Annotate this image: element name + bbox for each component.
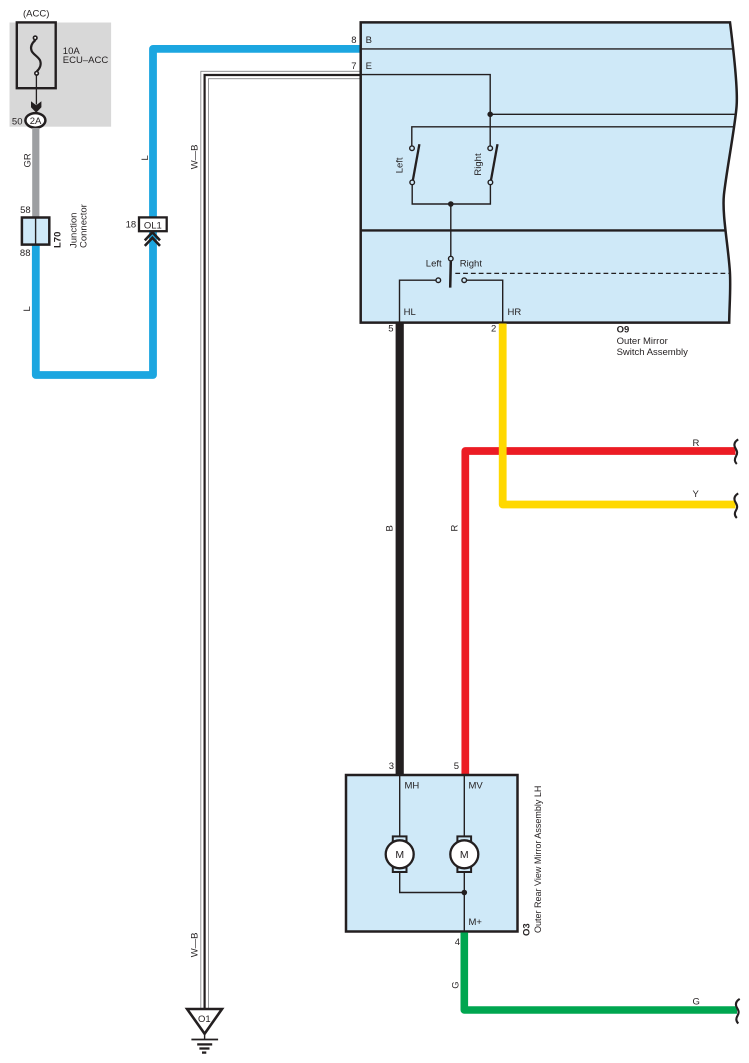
svg-text:MV: MV — [469, 780, 484, 791]
svg-text:M: M — [395, 849, 404, 861]
svg-text:58: 58 — [20, 205, 31, 216]
svg-text:E: E — [366, 61, 372, 72]
svg-text:88: 88 — [20, 248, 31, 259]
svg-text:Y: Y — [693, 489, 700, 500]
svg-text:G: G — [693, 997, 700, 1008]
svg-text:50: 50 — [12, 116, 23, 127]
svg-text:Connector: Connector — [79, 204, 90, 248]
svg-text:HR: HR — [508, 307, 522, 318]
svg-text:L70: L70 — [53, 232, 64, 248]
svg-text:18: 18 — [126, 220, 137, 231]
svg-text:M: M — [460, 849, 469, 861]
svg-text:2: 2 — [491, 323, 496, 334]
svg-text:Left: Left — [426, 258, 442, 269]
svg-text:G: G — [451, 981, 462, 988]
svg-text:R: R — [693, 438, 700, 449]
svg-text:M+: M+ — [469, 917, 483, 928]
svg-text:OL1: OL1 — [144, 220, 162, 231]
svg-text:O9: O9 — [617, 325, 630, 336]
svg-text:8: 8 — [351, 35, 356, 46]
svg-text:HL: HL — [404, 307, 416, 318]
svg-text:Left: Left — [395, 157, 406, 173]
svg-text:B: B — [366, 35, 372, 46]
svg-text:L: L — [22, 306, 33, 311]
svg-text:7: 7 — [351, 61, 356, 72]
svg-text:Outer Rear View Mirror Assembl: Outer Rear View Mirror Assembly LH — [533, 786, 543, 933]
svg-text:W—B: W—B — [190, 932, 201, 957]
svg-text:W—B: W—B — [190, 144, 201, 169]
svg-text:B: B — [384, 525, 395, 531]
svg-text:5: 5 — [454, 761, 459, 772]
svg-text:Outer Mirror: Outer Mirror — [617, 336, 668, 347]
svg-text:O3: O3 — [522, 923, 533, 936]
svg-text:(ACC): (ACC) — [23, 9, 49, 20]
svg-text:3: 3 — [389, 761, 394, 772]
svg-text:R: R — [450, 525, 461, 532]
svg-text:2A: 2A — [30, 116, 42, 127]
svg-text:5: 5 — [388, 323, 393, 334]
svg-text:GR: GR — [22, 153, 33, 167]
svg-text:Right: Right — [473, 153, 484, 176]
svg-text:MH: MH — [405, 780, 420, 791]
svg-text:Right: Right — [460, 258, 483, 269]
svg-text:4: 4 — [455, 937, 460, 948]
svg-text:O1: O1 — [198, 1014, 211, 1025]
svg-text:L: L — [140, 155, 151, 160]
svg-text:ECU–ACC: ECU–ACC — [63, 55, 109, 66]
svg-text:Switch Assembly: Switch Assembly — [617, 347, 689, 358]
